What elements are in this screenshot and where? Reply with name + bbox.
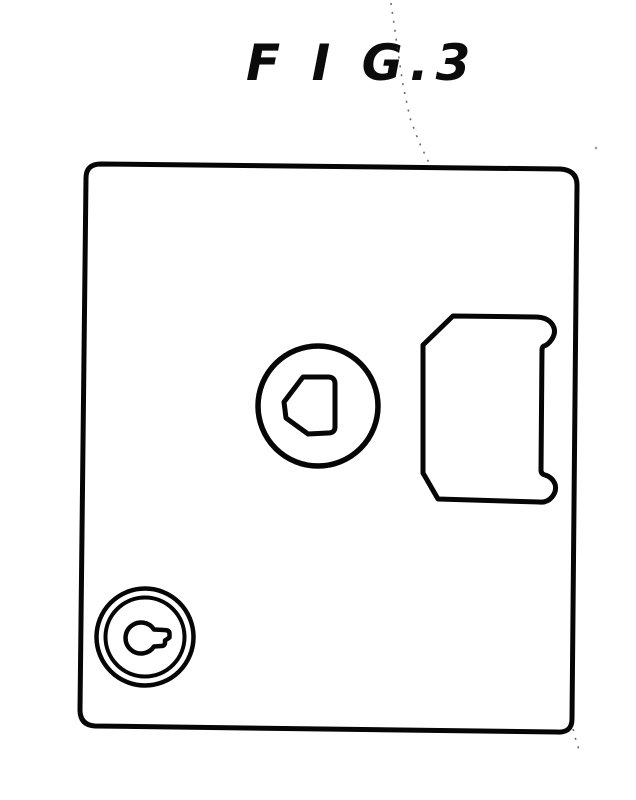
patent-figure-page: F I G.3 <box>0 0 636 800</box>
scan-speck <box>595 147 598 150</box>
figure-drawing <box>0 0 636 800</box>
figure-linework <box>80 164 577 732</box>
